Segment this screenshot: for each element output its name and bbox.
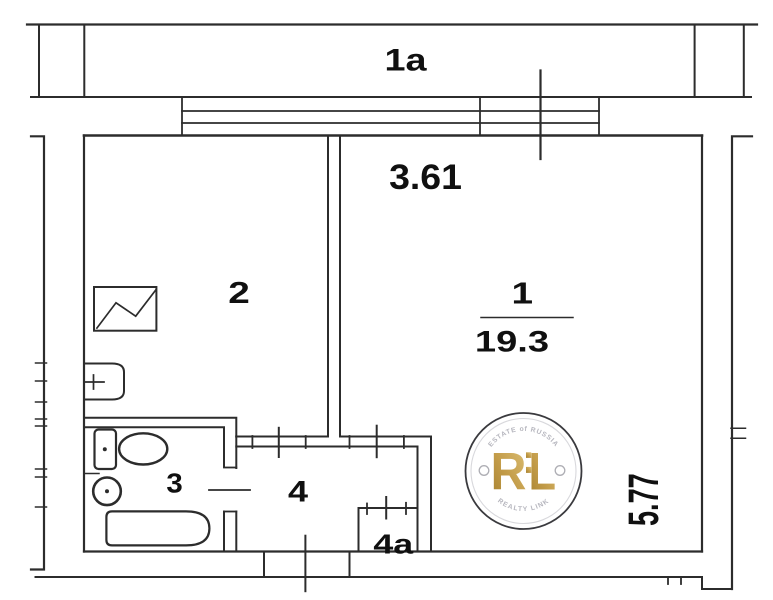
- svg-text:4a: 4a: [373, 528, 414, 559]
- svg-text:3.61: 3.61: [389, 157, 462, 197]
- svg-text:3: 3: [166, 468, 182, 499]
- svg-text:4: 4: [288, 475, 309, 508]
- svg-text:R: R: [491, 441, 527, 501]
- svg-text:5.77: 5.77: [619, 473, 668, 526]
- svg-text:19.3: 19.3: [475, 325, 549, 358]
- svg-text:1a: 1a: [384, 43, 427, 77]
- svg-text:L: L: [529, 442, 557, 501]
- svg-text:1: 1: [512, 276, 534, 310]
- svg-text:2: 2: [228, 276, 250, 310]
